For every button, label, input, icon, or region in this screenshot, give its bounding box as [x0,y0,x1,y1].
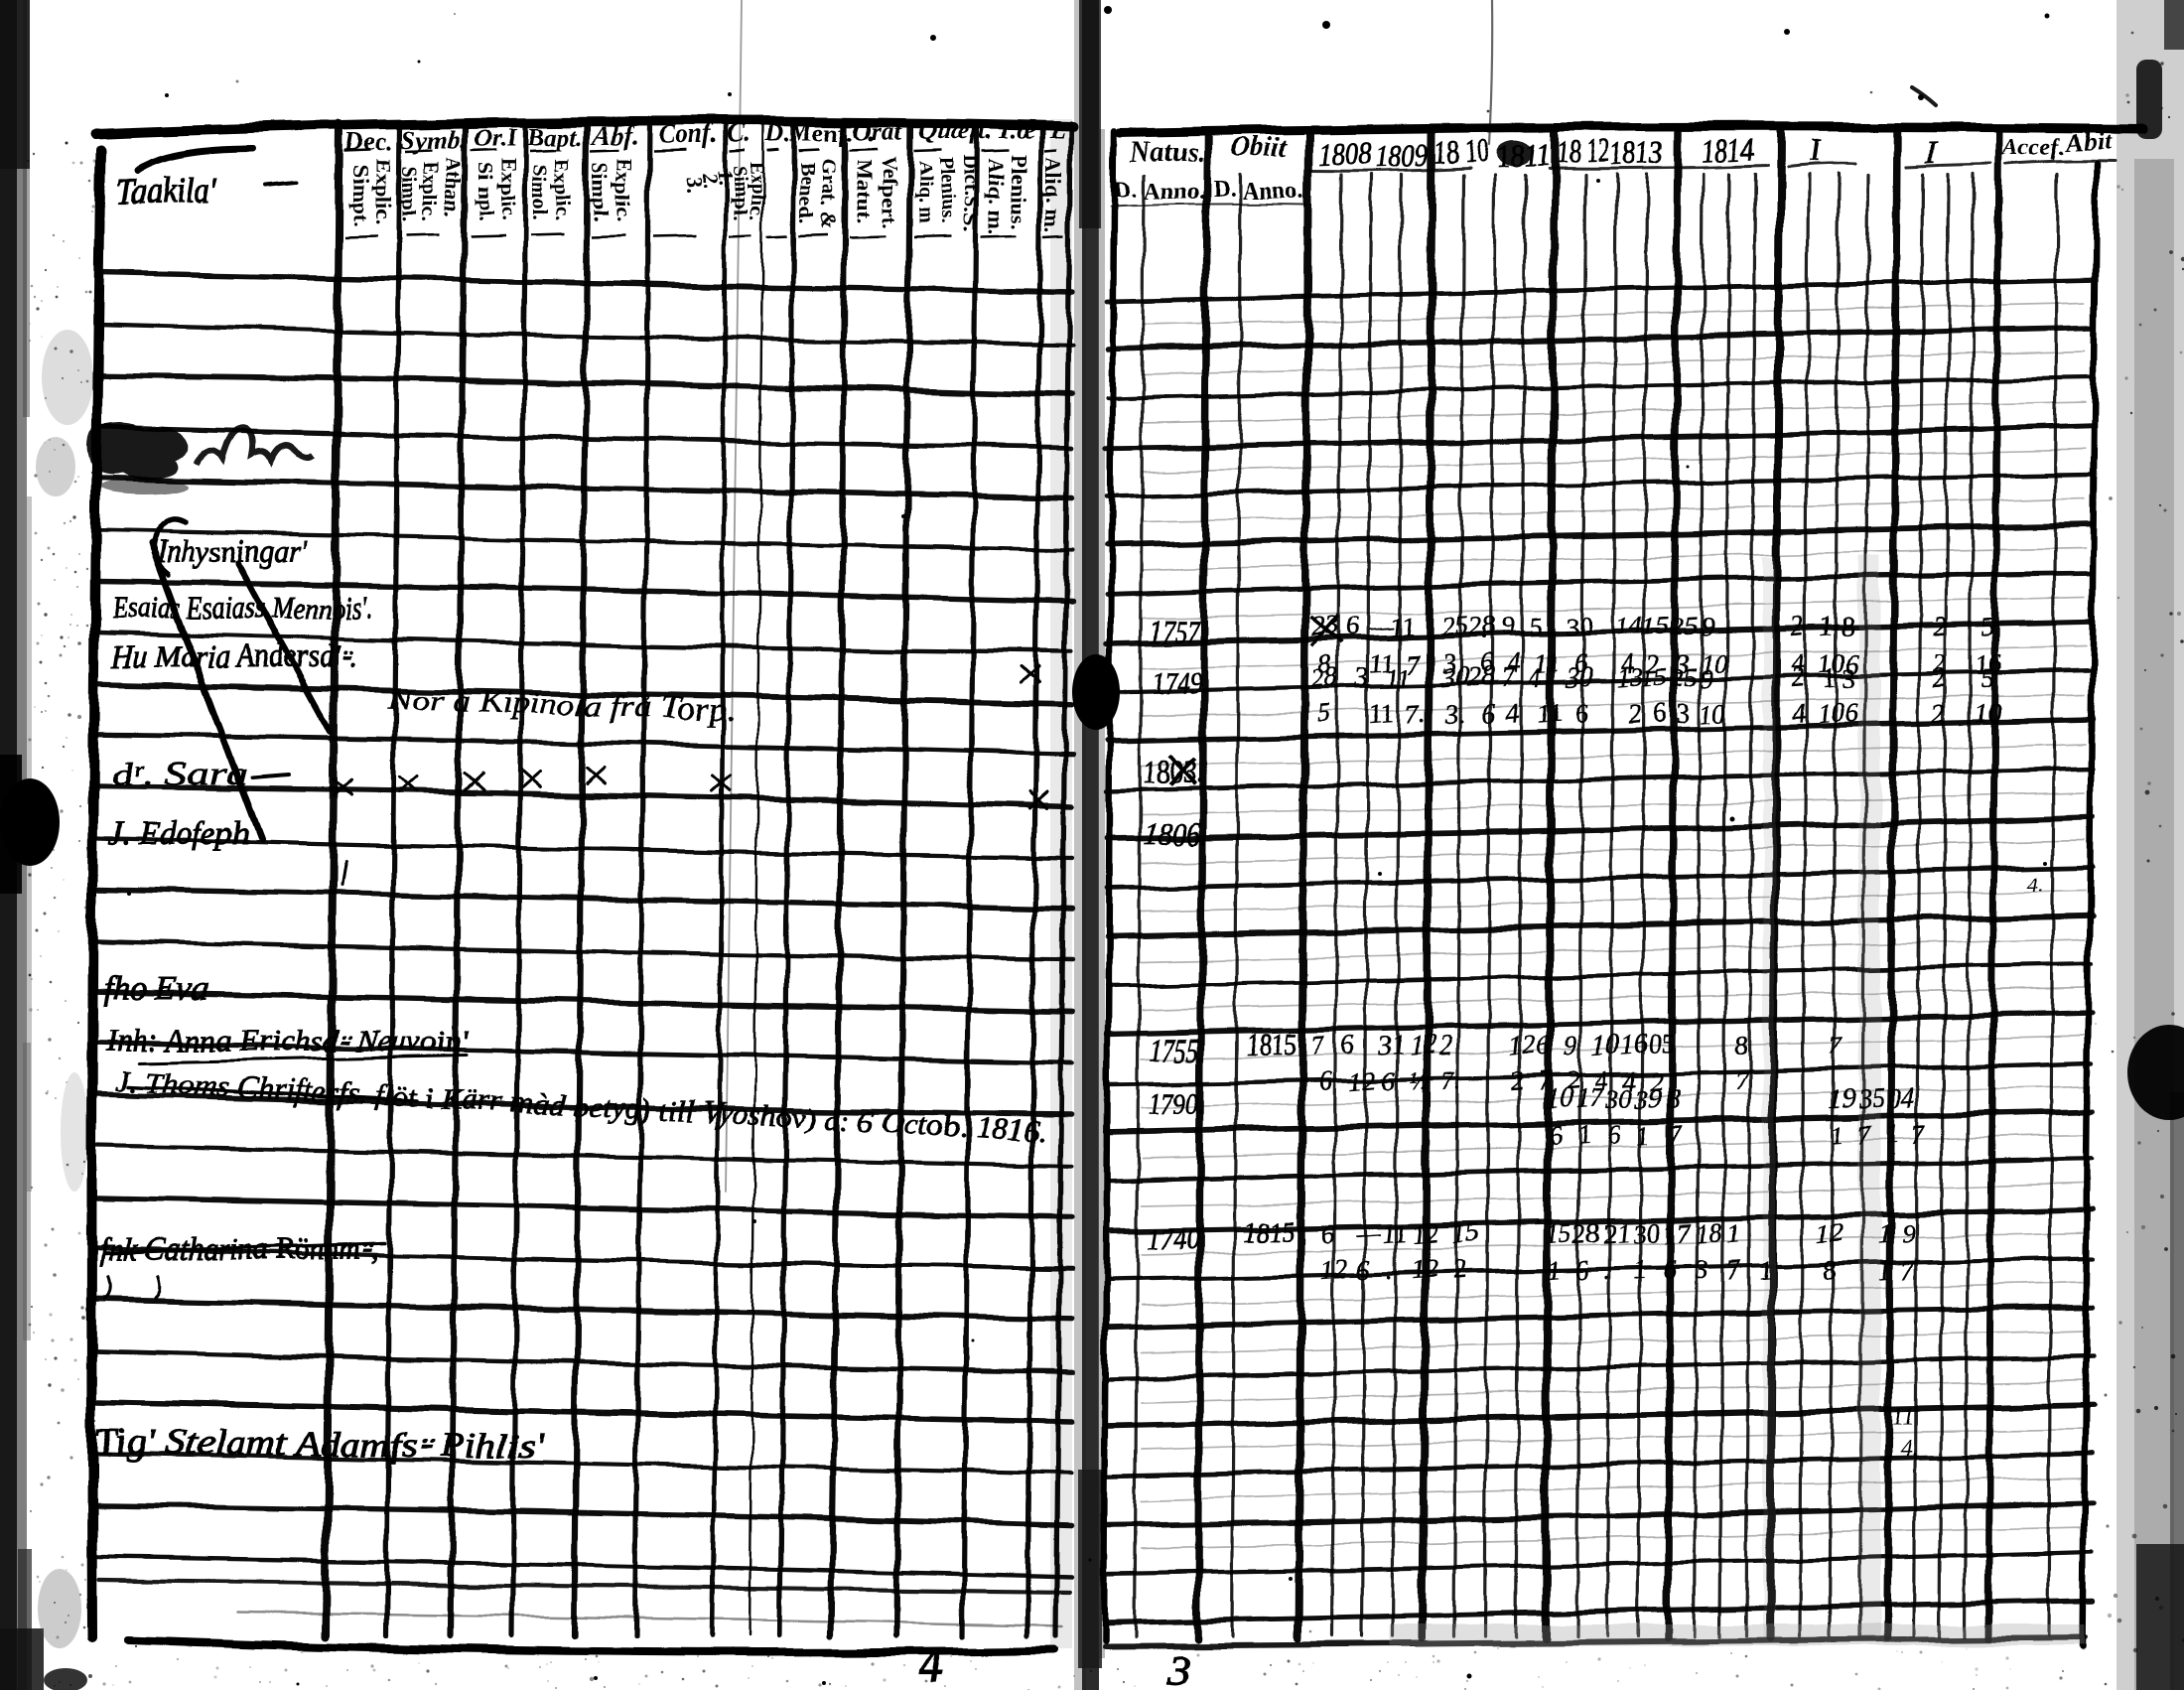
svg-text:1: 1 [1632,1254,1648,1285]
svg-text:Anno.: Anno. [1243,179,1304,205]
svg-text:Anno.: Anno. [1144,179,1205,205]
svg-text:28: 28 [1310,661,1340,693]
svg-text:6: 6 [1318,1065,1334,1096]
svg-text:15: 15 [1639,661,1668,693]
svg-text:1: 1 [1876,1254,1892,1285]
svg-text:11: 11 [1380,1217,1407,1249]
svg-text:Or.I: Or.I [474,123,518,152]
svg-text:1: 1 [1821,662,1837,693]
svg-text:Obiit: Obiit [1229,133,1288,164]
svg-text:25: 25 [1669,661,1698,693]
svg-text:12: 12 [1320,1253,1349,1285]
svg-text:Quæft.: Quæft. [918,116,992,145]
svg-text:—: — [1353,1217,1381,1249]
svg-text:16: 16 [1618,1029,1648,1060]
svg-text:17: 17 [1574,1082,1605,1114]
svg-text:1814: 1814 [1701,131,1755,169]
svg-text:18 10: 18 10 [1434,132,1489,170]
svg-text:11: 11 [1892,1404,1914,1430]
svg-text:6: 6 [1652,698,1668,729]
svg-text:4: 4 [919,1639,942,1690]
svg-text:3: 3 [1353,662,1370,693]
svg-text:9: 9 [1699,611,1714,641]
svg-text:9: 9 [1900,1218,1916,1249]
svg-text:Bapt.: Bapt. [526,122,584,151]
svg-text:Inh: Anna Erichsd⸚ Neuvoinʹ: Inh: Anna Erichsd⸚ Neuvoinʹ [104,1023,470,1057]
svg-text:Simpl.: Simpl. [589,164,613,221]
svg-text:8: 8 [1821,1254,1837,1285]
svg-text:11: 11 [1388,610,1415,641]
svg-text:6: 6 [1535,1030,1551,1060]
svg-text:3.: 3. [1442,698,1465,729]
svg-text:6: 6 [1380,1065,1396,1096]
svg-text:Plenius.: Plenius. [936,157,958,223]
svg-text:5: 5 [1528,611,1544,641]
svg-text:Conf.: Conf. [658,120,718,149]
svg-text:28: 28 [1572,1217,1602,1249]
svg-text:Abf.: Abf. [591,121,638,150]
svg-text:1: 1 [1636,1119,1652,1150]
svg-text:5: 5 [1316,698,1332,729]
svg-text:6: 6 [1320,1218,1336,1249]
svg-text:14: 14 [1615,610,1644,641]
svg-text:10: 10 [1816,697,1845,729]
svg-text:35: 35 [1855,1082,1885,1114]
svg-text:1757.: 1757. [1150,613,1205,648]
svg-text:D.: D. [1114,177,1137,203]
svg-text:1790.: 1790. [1150,1085,1205,1121]
svg-text:10: 10 [1590,1029,1620,1060]
svg-text:12: 12 [1348,1064,1377,1096]
svg-text:30: 30 [1603,1082,1634,1114]
svg-text:6: 6 [1547,1119,1563,1150]
svg-text:D.: D. [1213,177,1236,203]
svg-text:1749.: 1749. [1152,664,1207,700]
svg-text:7.: 7. [1404,698,1426,729]
svg-text:30: 30 [1564,610,1594,641]
svg-text:6: 6 [1481,698,1497,729]
svg-text:3: 3 [1166,1645,1190,1690]
svg-text:28: 28 [1465,661,1495,693]
svg-text:3: 3 [1675,698,1692,729]
svg-text:Explic.: Explic. [371,159,396,223]
svg-text:30: 30 [1564,661,1594,693]
svg-text:1740: 1740 [1148,1220,1199,1256]
svg-text:1: 1 [1757,1254,1773,1285]
svg-text:J. Edofeph: J. Edofeph [109,816,248,852]
svg-text:Matut.: Matut. [852,161,876,221]
svg-text:2: 2 [1627,698,1643,729]
svg-text:Aliq. m: Aliq. m [914,161,936,224]
svg-text:Abit: Abit [2064,128,2111,157]
svg-text:1815: 1815 [1243,1213,1295,1248]
svg-text:04: 04 [1886,1082,1915,1114]
svg-text:19: 19 [1827,1082,1856,1114]
svg-text:1: 1 [1725,1218,1741,1249]
svg-text:Si npl.: Si npl. [474,164,497,220]
svg-text:4.: 4. [1900,1436,1918,1462]
svg-text:11: 11 [1368,697,1395,729]
svg-text:Aliq. m.: Aliq. m. [984,159,1009,233]
svg-text:4: 4 [1790,698,1806,729]
svg-text:Simpl.: Simpl. [729,165,751,219]
svg-text:12: 12 [1410,1217,1438,1249]
svg-text:21: 21 [1602,1217,1631,1249]
svg-text:7.: 7. [1439,1065,1461,1096]
svg-text:1: 1 [1819,611,1835,641]
svg-text:12: 12 [1408,1029,1436,1060]
svg-text:1: 1 [1547,1254,1563,1285]
svg-text:2: 2 [1509,1065,1525,1096]
svg-text:Veſpert.: Veſpert. [877,157,900,227]
svg-text:5: 5 [1979,611,1995,641]
svg-text:18: 18 [1694,1217,1723,1249]
svg-text:Orat: Orat [853,117,902,146]
svg-text:6: 6 [1344,611,1360,641]
svg-text:Menf.: Menf. [789,118,854,147]
svg-text:15: 15 [1545,1217,1573,1249]
svg-text:1815: 1815 [1245,1027,1297,1061]
svg-text:9: 9 [1500,611,1516,641]
svg-text:6: 6 [1340,1030,1356,1060]
svg-text:25: 25 [1669,610,1698,641]
svg-text:Taakilaʹ: Taakilaʹ [115,171,217,211]
svg-text:1806.: 1806. [1144,815,1207,851]
svg-text:dʳ. Sara: dʳ. Sara [111,757,248,792]
svg-text:Simpt.: Simpt. [348,165,373,226]
svg-text:½: ½ [1408,1065,1430,1096]
svg-text:1808: 1808 [1317,134,1372,172]
svg-text:6: 6 [1662,1254,1678,1285]
svg-text:3: 3 [1693,1254,1709,1285]
svg-text:12: 12 [1815,1217,1843,1249]
svg-text:9: 9 [1699,662,1714,693]
svg-text:5: 5 [1979,662,1995,693]
svg-text:Esaias Esaiass Mennoisʹ.: Esaias Esaiass Mennoisʹ. [111,589,372,625]
svg-text:2: 2 [1790,611,1806,641]
svg-text:Hu Maria Andersdʹ⸚.: Hu Maria Andersdʹ⸚. [111,638,357,674]
svg-text:17: 17 [1662,1217,1693,1249]
svg-text:1: 1 [1576,1119,1592,1150]
svg-text:1: 1 [1876,1218,1892,1249]
svg-text:3.: 3. [681,177,706,194]
svg-text:D.: D. [764,119,790,148]
svg-text:3: 3 [1840,662,1856,693]
svg-text:Simpl.: Simpl. [398,165,422,222]
svg-text:18 12: 18 12 [1556,132,1610,170]
svg-text:Explic.: Explic. [551,159,575,220]
svg-text:Explic.: Explic. [496,159,520,220]
svg-text:Simol.: Simol. [528,164,552,220]
svg-text:2: 2 [1790,662,1806,693]
svg-text:6: 6 [1574,1254,1590,1285]
svg-text:31: 31 [1375,1029,1405,1060]
svg-text:11: 11 [1536,697,1563,729]
svg-text:1813: 1813 [1609,134,1664,172]
svg-text:Accef.: Accef. [1999,134,2066,161]
svg-text:30: 30 [1631,1217,1662,1249]
svg-text:Aliq. m.: Aliq. m. [1041,157,1066,231]
svg-text:10: 10 [1545,1082,1574,1114]
svg-text:Athan.: Athan. [441,157,465,217]
svg-text:1: 1 [1884,1119,1900,1150]
svg-text:05: 05 [1646,1029,1675,1060]
svg-text:12: 12 [1410,1253,1438,1285]
svg-text:8: 8 [1840,611,1855,641]
svg-text:2: 2 [1932,662,1948,693]
svg-text:4: 4 [1527,662,1543,693]
svg-text:T.œ: T.œ [997,115,1035,144]
svg-text:Natus.: Natus. [1129,137,1204,168]
svg-text:Inhysningarʹ: Inhysningarʹ [156,533,309,569]
svg-text:2: 2 [1437,1030,1453,1060]
svg-text:6: 6 [1843,698,1859,729]
svg-text:1755.: 1755. [1150,1032,1205,1067]
svg-text:C.: C. [727,119,751,148]
svg-text:Dict.S.S.: Dict.S.S. [959,155,983,230]
svg-text:Bened.: Bened. [795,163,819,223]
svg-text:15: 15 [1451,1217,1480,1249]
svg-text:39: 39 [1633,1082,1664,1114]
svg-text:4.: 4. [2027,872,2044,897]
svg-text:1: 1 [1830,1119,1845,1150]
svg-text:10: 10 [1974,697,2003,729]
svg-text:Explic.: Explic. [612,159,635,220]
svg-text:15: 15 [1641,610,1670,641]
svg-text:8: 8 [1666,1083,1682,1114]
svg-text:Plenius.: Plenius. [1007,155,1031,228]
svg-text:fho Eva: fho Eva [103,971,208,1007]
svg-text:25: 25 [1440,610,1469,641]
svg-text:11: 11 [1384,661,1411,693]
svg-text:4: 4 [1505,698,1521,729]
svg-text:Grat. &: Grat. & [817,159,841,229]
svg-text:1809: 1809 [1375,136,1430,174]
svg-text:9: 9 [1563,1030,1578,1060]
svg-text:6: 6 [1606,1119,1622,1150]
svg-text:6: 6 [1572,698,1588,729]
svg-text:12: 12 [1507,1029,1536,1060]
svg-text:2: 2 [1451,1254,1467,1285]
svg-text:2: 2 [1932,611,1948,641]
svg-text:10: 10 [1700,697,1729,729]
svg-text:6: 6 [1356,1254,1372,1285]
svg-text:Tigʹ Stelamt Adamfs⸚ Pihlisʹ: Tigʹ Stelamt Adamfs⸚ Pihlisʹ [94,1422,545,1466]
svg-text:28: 28 [1467,610,1497,641]
svg-text:2: 2 [1932,698,1948,729]
svg-text:L: L [1047,115,1064,144]
svg-text:8: 8 [1733,1030,1749,1060]
